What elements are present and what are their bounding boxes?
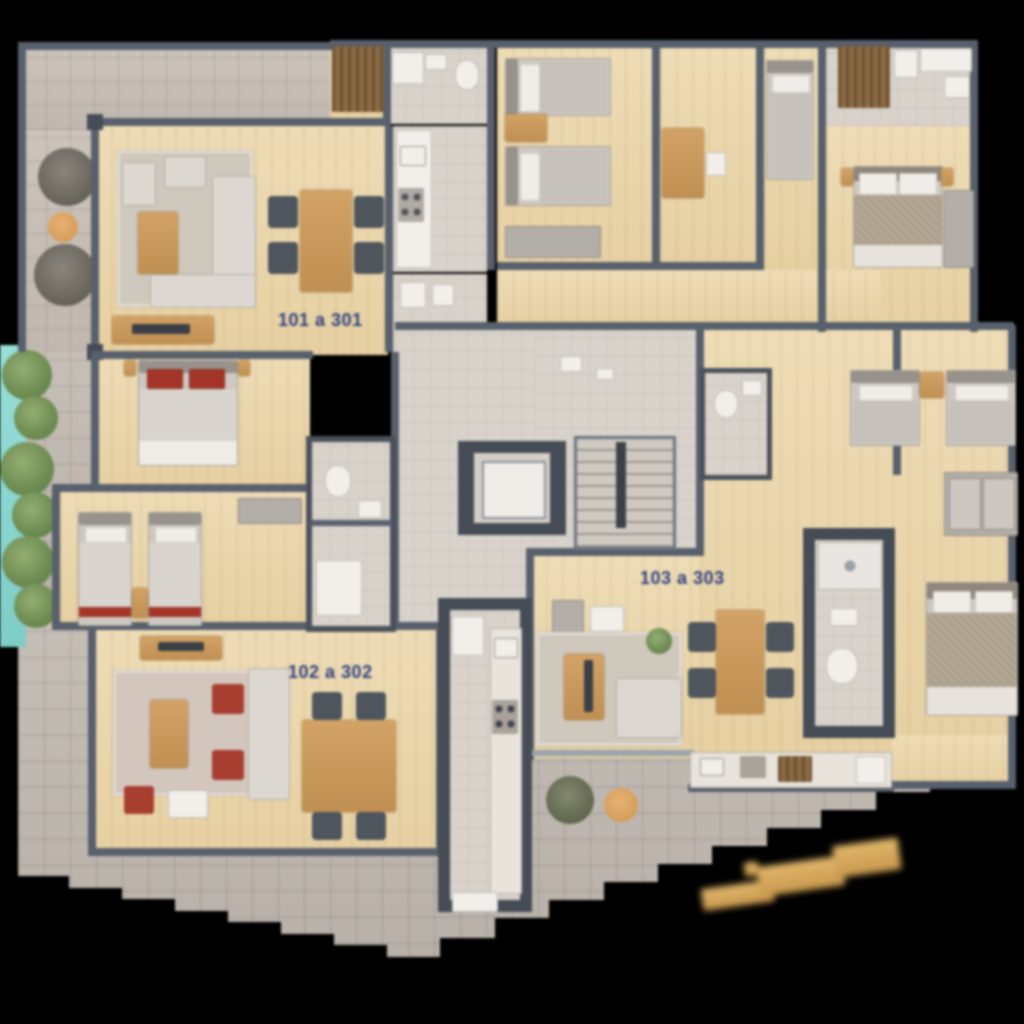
single-bed [148,512,202,626]
nightstand [124,360,136,376]
wall [310,520,392,526]
sofa [616,678,682,738]
dining-chair [354,242,384,274]
desk-chair [706,152,726,176]
bathroom-sink [742,380,762,396]
garden-tree [2,350,52,400]
wall-post [87,114,103,130]
nightstand [941,168,953,186]
kitchen-appliance [856,756,886,784]
shower [818,542,882,590]
wall [88,848,444,856]
kitchen-cabinet [838,46,890,108]
nightstand [920,372,944,398]
dining-table [716,610,764,714]
dining-table [302,720,396,812]
kitchen-counter [490,628,522,894]
tv [132,324,190,334]
tv [584,660,593,712]
terrace-tree [38,148,96,206]
closet [944,190,974,268]
nightstand [238,360,250,376]
shower [316,560,362,616]
wall [88,624,96,856]
dresser [238,498,302,524]
dining-table [300,190,352,292]
bench [168,790,208,818]
wall [890,781,1016,789]
unit-102-label: 102 a 302 [288,662,373,683]
hall-fixture [596,368,614,380]
wall [818,44,826,332]
sofa [248,668,290,800]
toilet [826,648,858,684]
wall [91,118,391,126]
wall [18,42,26,352]
red-armchair [212,750,244,780]
wall [756,40,764,270]
nightstand [841,168,853,186]
unit-103-label: 103 a 303 [640,568,725,589]
armchair [164,156,206,188]
floor-plan-canvas: 101 a 301 102 a 302 103 a 303 [0,0,1024,1024]
terrace-door-line [526,750,694,756]
single-bed [505,58,611,116]
pouf [124,786,154,814]
single-bed [946,370,1016,446]
terrace-tree [546,776,594,824]
dining-chair [268,196,298,228]
master-bed [853,166,943,268]
single-bed [766,60,814,180]
dining-chair [766,622,794,652]
desk [662,128,704,198]
wall [395,322,1014,330]
wall [52,484,60,630]
double-bed [138,360,238,466]
pantry [778,756,812,782]
kitchen-sink [400,146,426,166]
single-bed [78,512,132,626]
garden-tree [0,442,54,496]
bathroom-sink [358,500,382,518]
toilet [455,60,479,90]
dresser [505,226,601,258]
dining-chair [312,812,342,840]
stove [740,756,766,778]
entry-wardrobe [332,46,384,112]
stove [492,700,518,734]
kitchen-sink [700,758,724,776]
terrace-round-table [604,788,638,822]
wall [487,44,495,270]
washer [432,284,454,306]
single-bed [850,370,920,446]
wall [91,118,99,358]
bathroom-sink [425,54,447,70]
terrace-tree [34,244,96,306]
master-bed [926,582,1018,716]
plant [646,628,672,654]
dining-chair [312,692,342,720]
wall [91,351,99,491]
kitchen-sink [944,76,970,98]
terrace-round-table [48,212,78,242]
wall [652,44,660,270]
shelf [590,606,624,632]
wall [385,126,393,352]
toilet [714,390,738,418]
shower [392,52,424,84]
sofa [150,274,256,308]
armchair [122,162,156,206]
hall-fixture [560,356,582,372]
stair-rail [616,442,626,528]
wall [970,40,978,332]
wall [383,44,391,126]
tv [158,642,204,651]
dining-chair [688,622,716,652]
dining-chair [268,242,298,274]
toilet [325,465,351,497]
dining-chair [356,812,386,840]
bathroom-sink [830,608,858,626]
fridge [894,50,918,78]
garden-tree [14,396,58,440]
dining-chair [688,668,716,698]
wardrobe [944,472,1018,536]
door-mat [452,892,498,912]
dining-chair [766,668,794,698]
washer [400,282,426,308]
nightstand [505,114,547,142]
garden-tree [2,536,54,588]
kitchen-counter [920,48,972,72]
wall [20,42,332,50]
stove [398,188,424,222]
east-wing-extension [890,735,1016,785]
wall [57,484,313,492]
nightstand [132,588,148,618]
fridge [452,616,484,656]
single-bed [505,146,611,206]
coffee-table [150,700,188,768]
coffee-table [138,212,178,274]
unit-101-label: 101 a 301 [278,310,363,331]
kitchen-sink [494,638,518,658]
wall [91,351,313,359]
elevator [458,441,566,535]
red-armchair [212,684,244,714]
dining-chair [356,692,386,720]
wall [497,262,757,270]
dining-chair [354,196,384,228]
